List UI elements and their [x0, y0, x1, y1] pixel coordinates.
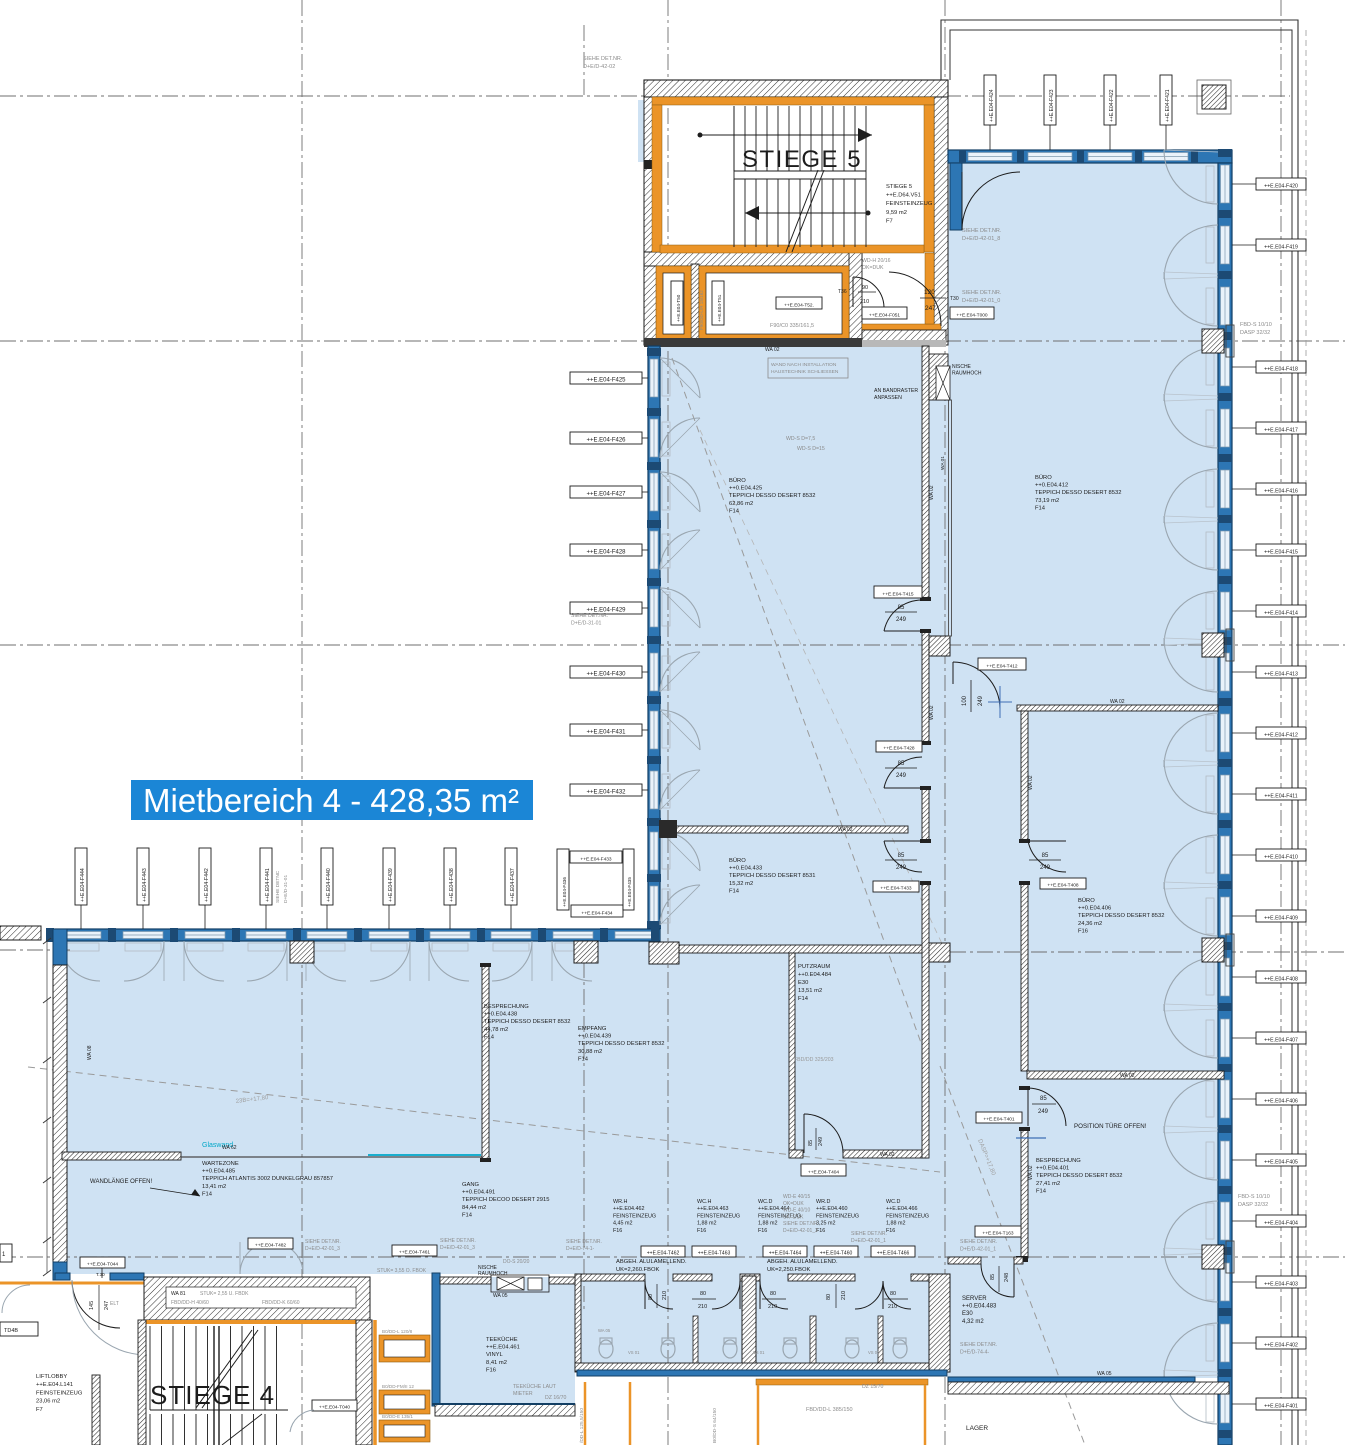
svg-text:++E.E04-F432: ++E.E04-F432 — [586, 789, 626, 795]
svg-text:FEINSTEINZEUG: FEINSTEINZEUG — [697, 1213, 740, 1219]
svg-text:120: 120 — [924, 289, 935, 296]
svg-text:TEEKÜCHE LAUT: TEEKÜCHE LAUT — [513, 1383, 557, 1390]
svg-text:F16: F16 — [758, 1228, 767, 1234]
svg-text:++E.E04-T163: ++E.E04-T163 — [982, 1230, 1014, 1236]
svg-text:210: 210 — [662, 1291, 668, 1300]
svg-text:D+E/D-42-01_1: D+E/D-42-01_1 — [960, 1247, 996, 1253]
svg-text:DO-S 20/20: DO-S 20/20 — [503, 1259, 530, 1265]
svg-text:1,88 m2: 1,88 m2 — [886, 1221, 905, 1227]
svg-text:++E.E04-T404: ++E.E04-T404 — [808, 1169, 840, 1175]
svg-text:++E.E04-F421: ++E.E04-F421 — [1165, 89, 1171, 122]
svg-text:++E.E04.466: ++E.E04.466 — [886, 1206, 917, 1212]
svg-text:WD-H 20/16: WD-H 20/16 — [862, 258, 891, 264]
svg-text:++E.E04-F441: ++E.E04-F441 — [265, 868, 271, 902]
svg-text:F7: F7 — [36, 1407, 43, 1413]
svg-text:210: 210 — [888, 1304, 897, 1310]
svg-text:RAUMHOCH: RAUMHOCH — [478, 1271, 508, 1277]
svg-text:BÜRO: BÜRO — [1035, 474, 1052, 481]
svg-text:WA 01: WA 01 — [940, 456, 946, 470]
svg-text:WA 02: WA 02 — [880, 1152, 895, 1158]
svg-text:++E.E04-F431: ++E.E04-F431 — [586, 729, 626, 735]
svg-text:STUK= 3,55 O. FBOK: STUK= 3,55 O. FBOK — [377, 1268, 427, 1274]
svg-text:++E.E04-F401: ++E.E04-F401 — [1264, 1403, 1298, 1409]
svg-text:++0.E04.412: ++0.E04.412 — [1035, 483, 1068, 489]
svg-text:F16: F16 — [697, 1228, 706, 1234]
svg-text:BÜRO: BÜRO — [729, 477, 746, 484]
svg-text:F14: F14 — [484, 1034, 495, 1040]
svg-text:RAUMHOCH: RAUMHOCH — [952, 370, 982, 376]
svg-text:1,88 m2: 1,88 m2 — [758, 1221, 777, 1227]
svg-text:++E.E04-F434: ++E.E04-F434 — [581, 910, 613, 916]
svg-text:8,41 m2: 8,41 m2 — [486, 1360, 507, 1366]
svg-text:F14: F14 — [729, 508, 740, 514]
svg-text:T36: T36 — [838, 289, 847, 295]
svg-text:++E.E04-F443: ++E.E04-F443 — [142, 868, 148, 902]
svg-text:WD-S D=15: WD-S D=15 — [797, 446, 825, 452]
svg-text:WA 05: WA 05 — [1097, 1371, 1112, 1377]
svg-text:BESPRECHUNG: BESPRECHUNG — [1036, 1158, 1081, 1164]
svg-text:WA 05: WA 05 — [598, 1328, 611, 1333]
svg-text:DZ 15/70: DZ 15/70 — [862, 1384, 883, 1390]
svg-text:TEPPICH DESSO DESERT 8532: TEPPICH DESSO DESERT 8532 — [1035, 490, 1121, 496]
svg-text:++E.E04-F437: ++E.E04-F437 — [510, 868, 516, 902]
svg-text:SIEHE DET.NR.: SIEHE DET.NR. — [783, 1221, 819, 1227]
svg-text:80: 80 — [648, 1294, 654, 1300]
svg-text:F14: F14 — [1036, 1188, 1047, 1194]
svg-text:210: 210 — [841, 1291, 847, 1300]
svg-text:STUK= 2,55 U. FBDK: STUK= 2,55 U. FBDK — [200, 1291, 249, 1297]
svg-text:210: 210 — [768, 1304, 777, 1310]
svg-text:F14: F14 — [202, 1191, 213, 1197]
svg-text:++E.E04-F404: ++E.E04-F404 — [1264, 1220, 1298, 1226]
svg-text:WA 02: WA 02 — [838, 827, 853, 833]
svg-text:WC.D: WC.D — [758, 1199, 772, 1205]
svg-text:++0.E04.491: ++0.E04.491 — [462, 1190, 495, 1196]
svg-text:++E.E04-T044: ++E.E04-T044 — [87, 1261, 119, 1267]
svg-text:++E.E04-F440: ++E.E04-F440 — [326, 868, 332, 902]
svg-text:++E.E04-T401: ++E.E04-T401 — [983, 1116, 1015, 1122]
svg-text:BESPRECHUNG: BESPRECHUNG — [484, 1004, 529, 1010]
svg-text:++E.E04-T463: ++E.E04-T463 — [698, 1250, 731, 1256]
svg-text:27,41 m2: 27,41 m2 — [1036, 1181, 1060, 1187]
svg-text:85: 85 — [898, 605, 905, 611]
svg-text:++E.E04-F425: ++E.E04-F425 — [586, 377, 626, 383]
svg-text:OK=DUK: OK=DUK — [783, 1201, 804, 1207]
svg-text:D+E/D-74-4-: D+E/D-74-4- — [960, 1350, 990, 1356]
svg-text:FBD/DD-H 40/60: FBD/DD-H 40/60 — [171, 1300, 209, 1306]
svg-text:WARTEZONE: WARTEZONE — [202, 1161, 239, 1167]
svg-text:++E.E04-F408: ++E.E04-F408 — [1264, 976, 1298, 982]
svg-text:UK=DUK: UK=DUK — [783, 1214, 804, 1220]
svg-text:D+E/D-42-01_2: D+E/D-42-01_2 — [783, 1228, 818, 1234]
svg-text:++E.E04-T461: ++E.E04-T461 — [399, 1249, 431, 1255]
svg-text:NISCHE: NISCHE — [952, 364, 972, 370]
svg-text:TEPPICH DESSO DESERT 8532: TEPPICH DESSO DESERT 8532 — [578, 1041, 664, 1047]
svg-text:UK=2,250.FBOK: UK=2,250.FBOK — [767, 1267, 810, 1273]
svg-text:++E.E04-F424: ++E.E04-F424 — [989, 89, 995, 122]
svg-text:F14: F14 — [462, 1212, 473, 1218]
svg-text:WC.D: WC.D — [886, 1199, 900, 1205]
svg-text:210: 210 — [860, 299, 869, 305]
svg-text:++E.E04.461: ++E.E04.461 — [486, 1345, 520, 1351]
svg-text:++E.E04-T408: ++E.E04-T408 — [1047, 882, 1079, 888]
svg-text:3,25 m2: 3,25 m2 — [816, 1221, 835, 1227]
svg-text:++E.E04-T412: ++E.E04-T412 — [986, 663, 1018, 669]
svg-text:++E.E04-T482: ++E.E04-T482 — [255, 1242, 287, 1248]
svg-text:SIEHE DETNC: SIEHE DETNC — [275, 870, 281, 903]
svg-text:++E.E04-T51: ++E.E04-T51 — [717, 294, 722, 322]
svg-text:F16: F16 — [1078, 928, 1088, 934]
svg-text:F14: F14 — [1035, 505, 1046, 511]
svg-text:B0/DD-L 120/8: B0/DD-L 120/8 — [382, 1329, 413, 1334]
svg-text:13,41 m2: 13,41 m2 — [202, 1184, 226, 1190]
svg-text:ANPASSEN: ANPASSEN — [874, 395, 902, 401]
svg-text:++0.E04.485: ++0.E04.485 — [202, 1169, 235, 1175]
svg-text:ABGEH. ALULAMELLEND.: ABGEH. ALULAMELLEND. — [767, 1259, 838, 1265]
svg-text:++E.E04-F442: ++E.E04-F442 — [204, 868, 210, 902]
svg-text:WA 62: WA 62 — [222, 1145, 237, 1151]
svg-text:++E.E04-F414: ++E.E04-F414 — [1264, 610, 1298, 616]
svg-text:++E.E04-F410: ++E.E04-F410 — [1264, 854, 1298, 860]
svg-text:++E.E04-T52.: ++E.E04-T52. — [784, 302, 814, 308]
svg-text:F90/DD-L/R 15/162: F90/DD-L/R 15/162 — [699, 290, 704, 330]
svg-text:++E.E04-F403: ++E.E04-F403 — [1264, 1281, 1298, 1287]
svg-text:TEPPICH DESSO DESERT 8532: TEPPICH DESSO DESERT 8532 — [729, 493, 815, 499]
svg-text:249: 249 — [1038, 1109, 1049, 1115]
svg-text:STIEGE 4: STIEGE 4 — [150, 1380, 275, 1410]
svg-text:249: 249 — [818, 1137, 824, 1146]
svg-text:145: 145 — [89, 1301, 95, 1310]
svg-text:++E.E04-F428: ++E.E04-F428 — [586, 549, 626, 555]
svg-text:SIEHE DET.NR.: SIEHE DET.NR. — [851, 1231, 887, 1237]
svg-text:TEPPICH DESSO DESERT 8531: TEPPICH DESSO DESERT 8531 — [729, 873, 815, 879]
svg-text:++E.E04-F422: ++E.E04-F422 — [1109, 89, 1115, 122]
svg-text:E30: E30 — [962, 1311, 973, 1317]
svg-text:FEINSTEINZEUG: FEINSTEINZEUG — [816, 1213, 859, 1219]
svg-text:FBD/DD-K 60/60: FBD/DD-K 60/60 — [262, 1300, 300, 1306]
svg-text:44,78 m2: 44,78 m2 — [484, 1027, 508, 1033]
svg-text:++E.E04-T462: ++E.E04-T462 — [647, 1250, 680, 1256]
svg-text:23,06 m2: 23,06 m2 — [36, 1399, 60, 1405]
svg-text:F16: F16 — [486, 1367, 496, 1373]
svg-text:TEPPICH DESSO DESERT 8532: TEPPICH DESSO DESERT 8532 — [484, 1019, 570, 1025]
svg-text:248: 248 — [1004, 1273, 1010, 1282]
svg-text:4,45 m2: 4,45 m2 — [613, 1221, 632, 1227]
svg-text:++E.E04-F419: ++E.E04-F419 — [1264, 244, 1298, 250]
svg-text:VS 01: VS 01 — [753, 1350, 765, 1355]
svg-text:LIFTLOBBY: LIFTLOBBY — [36, 1374, 67, 1380]
svg-text:80: 80 — [826, 1294, 832, 1300]
svg-text:249: 249 — [896, 617, 907, 623]
svg-text:ELT: ELT — [110, 1301, 119, 1307]
svg-text:D+E/D-42-01_1: D+E/D-42-01_1 — [851, 1238, 886, 1244]
svg-text:FEINSTEINZEUG: FEINSTEINZEUG — [613, 1213, 656, 1219]
svg-text:FBD/DD-L 385/150: FBD/DD-L 385/150 — [806, 1407, 853, 1413]
svg-text:DASP 32/32: DASP 32/32 — [1238, 1202, 1268, 1208]
svg-text:24,36 m2: 24,36 m2 — [1078, 921, 1102, 927]
svg-text:++E.E04-F416: ++E.E04-F416 — [1264, 488, 1298, 494]
svg-text:9,59 m2: 9,59 m2 — [886, 210, 907, 216]
svg-text:++E.E04-F439: ++E.E04-F439 — [388, 868, 394, 902]
svg-text:90: 90 — [862, 285, 868, 291]
svg-text:BÜRO: BÜRO — [729, 857, 746, 864]
svg-text:UK=2,260.FBOK: UK=2,260.FBOK — [616, 1267, 659, 1273]
svg-text:SIEHE DET.NR.: SIEHE DET.NR. — [305, 1239, 341, 1245]
svg-text:D+E/D-42-01_3: D+E/D-42-01_3 — [440, 1245, 475, 1251]
svg-text:TEPPICH DESSO DESERT 8532: TEPPICH DESSO DESERT 8532 — [1078, 913, 1164, 919]
svg-text:73,19 m2: 73,19 m2 — [1035, 498, 1059, 504]
svg-text:B0/DD-FM/II 12: B0/DD-FM/II 12 — [382, 1384, 414, 1389]
svg-text:++E.E04-F426: ++E.E04-F426 — [586, 437, 626, 443]
svg-text:++E.E04-F444: ++E.E04-F444 — [80, 868, 86, 902]
svg-text:WA 02: WA 02 — [765, 347, 780, 353]
svg-text:F14: F14 — [798, 996, 809, 1002]
svg-text:++E.E04-T415: ++E.E04-T415 — [882, 591, 914, 597]
svg-text:WD-S D=7,5: WD-S D=7,5 — [786, 436, 815, 442]
svg-text:DASP 32/32: DASP 32/32 — [1240, 330, 1270, 336]
svg-text:++0.E04.484: ++0.E04.484 — [798, 972, 832, 978]
svg-text:GANG: GANG — [462, 1182, 480, 1188]
svg-text:++E.E04.L141: ++E.E04.L141 — [36, 1382, 73, 1388]
svg-text:VINYL: VINYL — [486, 1352, 504, 1358]
svg-text:++0.E04.439: ++0.E04.439 — [578, 1034, 611, 1040]
svg-text:++E.E04-F418: ++E.E04-F418 — [1264, 366, 1298, 372]
svg-text:15,32 m2: 15,32 m2 — [729, 881, 753, 887]
svg-text:85: 85 — [898, 853, 905, 859]
svg-text:++E.E04.460: ++E.E04.460 — [816, 1206, 847, 1212]
svg-text:++E.E04-T460: ++E.E04-T460 — [820, 1250, 853, 1256]
svg-text:HAUSTECHNIK SCHLIESSEN: HAUSTECHNIK SCHLIESSEN — [771, 369, 839, 375]
svg-text:F14: F14 — [729, 888, 740, 894]
svg-text:VS 01: VS 01 — [628, 1350, 640, 1355]
svg-text:WA 02: WA 02 — [929, 485, 935, 500]
svg-text:F14: F14 — [578, 1056, 589, 1062]
svg-text:WC.H: WC.H — [697, 1199, 711, 1205]
svg-text:TD4B: TD4B — [4, 1328, 18, 1334]
svg-text:D+E/D-31-01: D+E/D-31-01 — [571, 621, 602, 627]
svg-text:F16: F16 — [886, 1228, 895, 1234]
svg-text:WA 08: WA 08 — [87, 1045, 93, 1060]
svg-text:249: 249 — [978, 695, 984, 706]
svg-text:PUTZRAUM: PUTZRAUM — [798, 964, 830, 970]
svg-text:LAGER: LAGER — [966, 1425, 988, 1432]
svg-text:F90/C0 335/161,5: F90/C0 335/161,5 — [770, 323, 814, 329]
svg-text:FBD-S 10/10: FBD-S 10/10 — [1238, 1194, 1270, 1200]
svg-text:WAND NACH INSTALLATION: WAND NACH INSTALLATION — [771, 362, 837, 368]
svg-text:85: 85 — [1042, 853, 1049, 859]
svg-text:WA 02: WA 02 — [1110, 699, 1125, 705]
svg-text:++E.E04-F433: ++E.E04-F433 — [580, 856, 612, 862]
svg-text:B0/DD-S 64/150: B0/DD-S 64/150 — [712, 1408, 718, 1443]
svg-text:++E.E04-F051: ++E.E04-F051 — [869, 312, 901, 318]
svg-text:STIEGE 5: STIEGE 5 — [742, 146, 862, 173]
svg-text:FBD-S 10/10: FBD-S 10/10 — [1240, 322, 1272, 328]
svg-text:++E.E04-T433: ++E.E04-T433 — [880, 885, 912, 891]
svg-text:210: 210 — [698, 1304, 707, 1310]
svg-text:T.30: T.30 — [96, 1272, 105, 1277]
svg-text:SIEHE DET.NR.: SIEHE DET.NR. — [440, 1238, 476, 1244]
svg-text:B0/DD-E 135/1: B0/DD-E 135/1 — [382, 1414, 413, 1419]
svg-text:85: 85 — [1040, 1096, 1047, 1102]
svg-text:D+E/D-74-1-: D+E/D-74-1- — [566, 1246, 595, 1252]
svg-text:FEINSTEINZEUG: FEINSTEINZEUG — [886, 1213, 929, 1219]
svg-text:D+E/D-42-01_0: D+E/D-42-01_0 — [962, 298, 1000, 304]
svg-text:TEPPICH DESSO DESERT 8532: TEPPICH DESSO DESERT 8532 — [1036, 1173, 1122, 1179]
svg-text:TEPPICH ATLANTIS 3002 DUNKELGR: TEPPICH ATLANTIS 3002 DUNKELGRAU 857857 — [202, 1176, 333, 1182]
svg-text:F7: F7 — [886, 218, 893, 224]
svg-text:++E.E04-F430: ++E.E04-F430 — [586, 671, 626, 677]
svg-text:++0.E04.425: ++0.E04.425 — [729, 486, 762, 492]
svg-text:WANDLÄNGE OFFEN!: WANDLÄNGE OFFEN! — [90, 1178, 152, 1185]
svg-text:++E.E04-F411: ++E.E04-F411 — [1264, 793, 1297, 799]
svg-text:++E.E04-F412: ++E.E04-F412 — [1264, 732, 1298, 738]
svg-text:TEPPICH DECOO DESERT 2915: TEPPICH DECOO DESERT 2915 — [462, 1197, 549, 1203]
svg-text:++E.E04-F417: ++E.E04-F417 — [1264, 427, 1298, 433]
svg-text:FBD/DD 325/203: FBD/DD 325/203 — [794, 1057, 834, 1063]
svg-text:249: 249 — [896, 773, 907, 779]
svg-text:++E.E04-F438: ++E.E04-F438 — [449, 868, 455, 902]
svg-text:++E.E04-F405: ++E.E04-F405 — [1264, 1159, 1298, 1165]
svg-text:++E.E04-F402: ++E.E04-F402 — [1264, 1342, 1298, 1348]
svg-text:WR.D: WR.D — [816, 1199, 830, 1205]
svg-text:WD-E 40/10: WD-E 40/10 — [783, 1208, 810, 1214]
svg-text:80: 80 — [770, 1291, 776, 1297]
svg-text:FEINSTEINZEUG: FEINSTEINZEUG — [886, 201, 933, 207]
svg-text:++E.E04-T464: ++E.E04-T464 — [769, 1250, 802, 1256]
svg-text:++E.E04-F427: ++E.E04-F427 — [586, 491, 626, 497]
svg-text:++E.E04-F406: ++E.E04-F406 — [1264, 1098, 1298, 1104]
svg-text:WR.H: WR.H — [613, 1199, 627, 1205]
svg-text:++E.E04-T428: ++E.E04-T428 — [883, 745, 915, 751]
svg-text:BÜRO: BÜRO — [1078, 897, 1095, 904]
svg-text:85: 85 — [898, 761, 905, 767]
svg-text:++0.E04.406: ++0.E04.406 — [1078, 906, 1111, 912]
svg-text:++E.E04-F407: ++E.E04-F407 — [1264, 1037, 1298, 1043]
svg-text:ABGEH. ALULAMELLEND.: ABGEH. ALULAMELLEND. — [616, 1259, 687, 1265]
svg-text:D+E/D-42-01_8: D+E/D-42-01_8 — [962, 236, 1000, 242]
svg-text:MIETER: MIETER — [513, 1391, 533, 1397]
svg-text:D+E/D-42-01_3: D+E/D-42-01_3 — [305, 1246, 340, 1252]
svg-text:SIEHE DET.NR.: SIEHE DET.NR. — [571, 613, 608, 619]
svg-text:EMPFANG: EMPFANG — [578, 1026, 607, 1032]
svg-text:WA 81: WA 81 — [171, 1291, 186, 1297]
svg-text:SERVER: SERVER — [962, 1296, 987, 1302]
svg-text:D+E/D-42-02: D+E/D-42-02 — [583, 64, 615, 70]
svg-text:/DD-L 125,5/150: /DD-L 125,5/150 — [579, 1408, 585, 1443]
svg-text:OK=DUK: OK=DUK — [862, 265, 884, 271]
svg-text:WA 05: WA 05 — [493, 1293, 508, 1299]
svg-text:++E.E04-T466: ++E.E04-T466 — [877, 1250, 910, 1256]
svg-text:++E.E04-F420: ++E.E04-F420 — [1264, 183, 1298, 189]
svg-text:13,51 m2: 13,51 m2 — [798, 988, 822, 994]
svg-text:SIEHE DET.NR.: SIEHE DET.NR. — [583, 56, 623, 62]
svg-text:++E.E04-F436: ++E.E04-F436 — [562, 877, 567, 907]
svg-text:85: 85 — [990, 1274, 996, 1280]
svg-text:WA 02: WA 02 — [929, 705, 935, 720]
svg-text:62,86 m2: 62,86 m2 — [729, 501, 753, 507]
svg-text:++0.E04.438: ++0.E04.438 — [484, 1012, 517, 1018]
svg-text:249: 249 — [896, 865, 907, 871]
svg-text:30,88 m2: 30,88 m2 — [578, 1049, 602, 1055]
svg-text:++E.E04-F413: ++E.E04-F413 — [1264, 671, 1298, 677]
svg-text:WA 02: WA 02 — [1028, 775, 1034, 790]
svg-text:100: 100 — [962, 695, 968, 706]
svg-text:DZ 16/70: DZ 16/70 — [545, 1395, 566, 1401]
svg-text:WA 02: WA 02 — [1120, 1073, 1135, 1079]
svg-text:247: 247 — [925, 305, 936, 312]
svg-text:85: 85 — [808, 1140, 814, 1146]
svg-text:++0.E04.483: ++0.E04.483 — [962, 1304, 997, 1310]
svg-text:POSITION TÜRE OFFEN!: POSITION TÜRE OFFEN! — [1074, 1123, 1147, 1130]
svg-text:++E.E04-T040: ++E.E04-T040 — [319, 1404, 351, 1410]
svg-text:WD-E 40/15: WD-E 40/15 — [783, 1194, 810, 1200]
svg-text:SIEHE DET.NR.: SIEHE DET.NR. — [962, 228, 1002, 234]
svg-text:80: 80 — [700, 1291, 706, 1297]
svg-text:AN BANDRASTER: AN BANDRASTER — [874, 388, 918, 394]
svg-text:++0.E04.433: ++0.E04.433 — [729, 866, 762, 872]
svg-text:++E.E04-T000: ++E.E04-T000 — [956, 312, 988, 318]
svg-text:T30: T30 — [950, 296, 959, 302]
svg-text:++E.E04-F415: ++E.E04-F415 — [1264, 549, 1298, 555]
svg-text:249: 249 — [1040, 865, 1051, 871]
svg-text:4,32 m2: 4,32 m2 — [962, 1319, 984, 1325]
svg-text:++0.E04.401: ++0.E04.401 — [1036, 1166, 1069, 1172]
svg-text:84,44 m2: 84,44 m2 — [462, 1205, 486, 1211]
svg-text:++E.E04-T50: ++E.E04-T50 — [676, 294, 681, 322]
svg-text:FEINSTEINZEUG: FEINSTEINZEUG — [36, 1390, 83, 1396]
svg-text:D+E/D-31-01: D+E/D-31-01 — [283, 875, 289, 903]
svg-text:WA 02: WA 02 — [1028, 1165, 1034, 1180]
svg-text:++E.E04-F423: ++E.E04-F423 — [1049, 89, 1055, 122]
svg-text:++E.E04.462: ++E.E04.462 — [613, 1206, 644, 1212]
svg-text:++E.E04-F409: ++E.E04-F409 — [1264, 915, 1298, 921]
svg-text:STIEGE 5: STIEGE 5 — [886, 184, 912, 190]
svg-text:SIEHE DET.NR.: SIEHE DET.NR. — [566, 1239, 602, 1245]
svg-text:VS 01: VS 01 — [868, 1350, 880, 1355]
svg-text:SIEHE DET.NR.: SIEHE DET.NR. — [960, 1342, 997, 1348]
svg-text:SIEHE DET.NR.: SIEHE DET.NR. — [960, 1239, 997, 1245]
svg-text:80: 80 — [890, 1291, 896, 1297]
svg-text:E30: E30 — [798, 980, 808, 986]
svg-text:F16: F16 — [613, 1228, 622, 1234]
svg-text:++E.E04.463: ++E.E04.463 — [697, 1206, 728, 1212]
svg-text:++E.E04-F435: ++E.E04-F435 — [627, 877, 632, 907]
svg-text:SIEHE DET.NR.: SIEHE DET.NR. — [962, 290, 1002, 296]
svg-text:Mietbereich 4 - 428,35 m²: Mietbereich 4 - 428,35 m² — [143, 782, 519, 819]
svg-text:++E.D64.V51: ++E.D64.V51 — [886, 193, 921, 199]
svg-text:1,88 m2: 1,88 m2 — [697, 1221, 716, 1227]
svg-text:TEEKÜCHE: TEEKÜCHE — [486, 1336, 518, 1343]
